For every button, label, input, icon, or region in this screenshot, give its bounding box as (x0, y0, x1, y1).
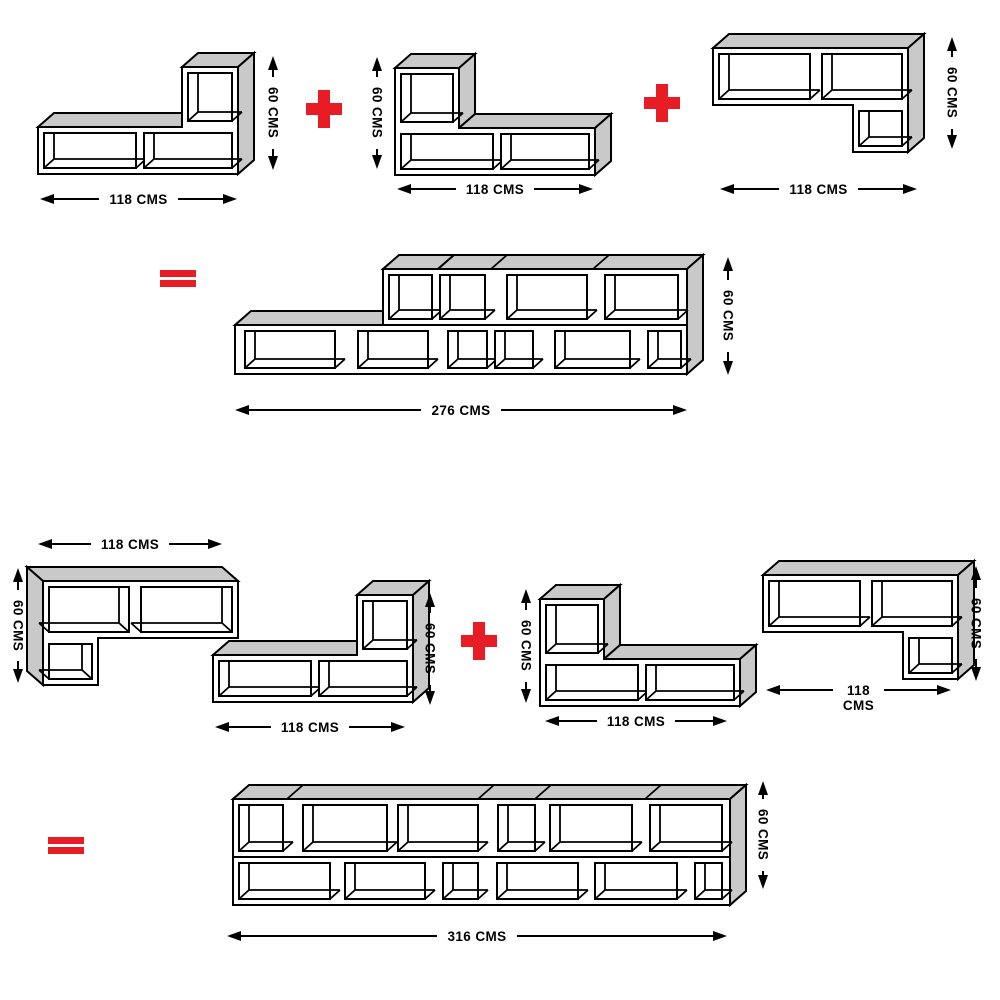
result1-width-dimension: 276 CMS (235, 402, 687, 418)
unitC-cube-left-shelf-drawing (540, 585, 756, 707)
arrow-right-icon (673, 405, 687, 415)
arrow-right-icon (903, 184, 917, 194)
arrow-down-icon (723, 361, 733, 375)
unitA-top-shelf-hanging-cube-left-drawing (27, 567, 238, 685)
unitB-shelf-cube-right-drawing (213, 581, 429, 703)
unitA-width-dimension: 118 CMS (38, 536, 222, 552)
arrow-right-icon (937, 685, 951, 695)
arrow-up-icon (947, 37, 957, 51)
unitC-height-dimension: 60 CMS (515, 589, 537, 703)
arrow-up-icon (13, 568, 23, 582)
unit2-width-label: 118 CMS (456, 182, 534, 197)
unit1-height-label: 60 CMS (266, 77, 281, 148)
arrow-left-icon (38, 539, 52, 549)
result1-height-label: 60 CMS (721, 280, 736, 351)
unitA-height-label: 60 CMS (11, 590, 26, 661)
unitA-width-label: 118 CMS (91, 537, 169, 552)
unit3-width-dimension: 118 CMS (720, 181, 917, 197)
unitD-height-dimension: 60 CMS (965, 566, 987, 681)
combined-stepped-unit-drawing (235, 252, 703, 374)
result2-height-label: 60 CMS (756, 799, 771, 870)
unit3-height-label: 60 CMS (945, 57, 960, 128)
result1-width-label: 276 CMS (421, 403, 500, 418)
result2-height-dimension: 60 CMS (752, 781, 774, 889)
equals-icon (48, 837, 84, 855)
result1-height-dimension: 60 CMS (717, 257, 739, 375)
arrow-down-icon (425, 691, 435, 705)
unit2-width-dimension: 118 CMS (397, 181, 593, 197)
unitD-top-shelf-hanging-cube-drawing (763, 561, 974, 679)
unitC-width-label: 118 CMS (597, 714, 675, 729)
unit2-cube-left-shelf-drawing (395, 54, 611, 176)
plus-icon (306, 90, 342, 128)
unit3-top-shelf-hanging-cube-drawing (713, 34, 924, 152)
arrow-left-icon (235, 405, 249, 415)
unit2-height-label: 60 CMS (370, 77, 385, 148)
unit1-shelf-cube-right-drawing (38, 53, 254, 175)
unit1-width-label: 118 CMS (99, 192, 177, 207)
arrow-up-icon (425, 593, 435, 607)
unitC-height-label: 60 CMS (519, 610, 534, 681)
arrow-up-icon (521, 589, 531, 603)
arrow-up-icon (758, 781, 768, 795)
arrow-up-icon (971, 566, 981, 580)
unitA-height-dimension: 60 CMS (7, 568, 29, 683)
unit2-height-dimension: 60 CMS (366, 57, 388, 169)
unit3-width-label: 118 CMS (779, 182, 857, 197)
equals-icon (160, 270, 196, 288)
arrow-down-icon (13, 669, 23, 683)
arrow-left-icon (720, 184, 734, 194)
arrow-left-icon (766, 685, 780, 695)
arrow-down-icon (758, 875, 768, 889)
arrow-up-icon (723, 257, 733, 271)
unitC-width-dimension: 118 CMS (545, 713, 727, 729)
arrow-left-icon (227, 931, 241, 941)
plus-icon (644, 84, 680, 122)
unit3-height-dimension: 60 CMS (941, 37, 963, 149)
arrow-down-icon (268, 156, 278, 170)
arrow-right-icon (391, 722, 405, 732)
unit1-width-dimension: 118 CMS (40, 191, 237, 207)
arrow-left-icon (40, 194, 54, 204)
result2-width-label: 316 CMS (437, 929, 516, 944)
combined-long-unit-drawing (233, 785, 746, 905)
arrow-left-icon (215, 722, 229, 732)
arrow-left-icon (397, 184, 411, 194)
arrow-right-icon (713, 716, 727, 726)
arrow-up-icon (372, 57, 382, 71)
arrow-right-icon (713, 931, 727, 941)
unit1-height-dimension: 60 CMS (262, 56, 284, 170)
unitB-width-dimension: 118 CMS (215, 719, 405, 735)
arrow-right-icon (579, 184, 593, 194)
arrow-left-icon (545, 716, 559, 726)
unitD-width-dimension: 118 CMS (766, 682, 951, 698)
arrow-down-icon (971, 667, 981, 681)
arrow-down-icon (947, 135, 957, 149)
unitD-width-label: 118 CMS (833, 683, 884, 713)
unitB-height-dimension: 60 CMS (419, 593, 441, 705)
arrow-down-icon (372, 155, 382, 169)
arrow-right-icon (223, 194, 237, 204)
shelving-combination-diagram: 60 CMS 118 CMS 60 CMS 118 CMS 60 CMS 118… (0, 0, 1000, 1000)
arrow-down-icon (521, 689, 531, 703)
arrow-up-icon (268, 56, 278, 70)
arrow-right-icon (208, 539, 222, 549)
unitB-width-label: 118 CMS (271, 720, 349, 735)
result2-width-dimension: 316 CMS (227, 928, 727, 944)
unitD-height-label: 60 CMS (969, 588, 984, 659)
plus-icon (461, 622, 497, 660)
unitB-height-label: 60 CMS (423, 613, 438, 684)
